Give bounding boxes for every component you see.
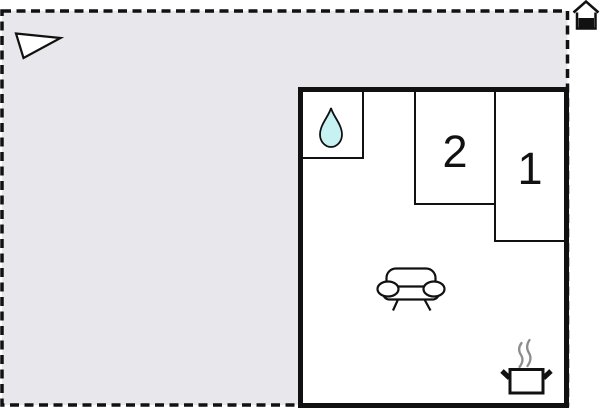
room-number-label: 2: [442, 129, 467, 174]
room-number-label: 1: [517, 146, 542, 191]
house-marker-icon: [574, 2, 599, 29]
room-bedroom-2: 2: [414, 92, 494, 205]
floor-plan: 2 1: [0, 0, 600, 410]
room-bedroom-1: 1: [494, 92, 564, 242]
room-bathroom: [303, 92, 364, 159]
pennant-flag-icon: [16, 34, 61, 59]
house-outline: 2 1: [298, 87, 569, 408]
